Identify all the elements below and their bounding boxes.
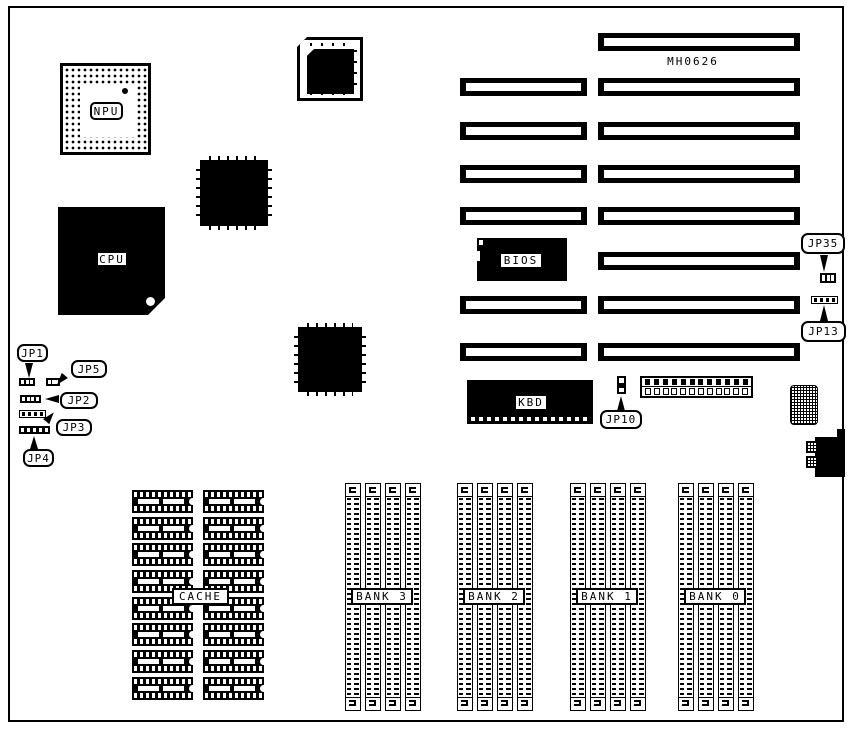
socket-latch — [679, 484, 693, 497]
chip-notch — [189, 578, 193, 585]
chip-window — [138, 526, 159, 531]
chip-window — [234, 579, 255, 584]
power-pin — [654, 379, 659, 385]
edge-pin-block — [806, 441, 817, 453]
pin-row — [134, 679, 191, 684]
power-pin-row — [642, 378, 751, 387]
cache-chip — [203, 677, 264, 700]
pin-row — [134, 572, 191, 577]
power-cell — [654, 388, 660, 395]
pin-row — [205, 666, 262, 671]
power-cell — [707, 388, 713, 395]
power-pin — [734, 379, 739, 385]
power-pin — [743, 379, 748, 385]
socket-latch — [366, 697, 380, 710]
chip-window — [234, 552, 255, 557]
socket-latch — [571, 484, 585, 497]
power-cell-row — [642, 387, 751, 396]
simm-bank-2: BANK 2 — [457, 483, 533, 711]
socket-latch — [699, 484, 713, 497]
chip-window — [163, 686, 184, 691]
callout-jp4: JP4 — [23, 449, 54, 467]
socket-latch — [386, 484, 400, 497]
jumper-pin — [820, 298, 823, 302]
plcc-ring — [300, 40, 360, 98]
power-pin — [645, 379, 650, 385]
chip-notch — [260, 525, 264, 532]
jumper-pin — [826, 298, 829, 302]
isa-slot-short — [460, 207, 587, 225]
isa-slot-long — [598, 296, 800, 314]
callout-jp10: JP10 — [600, 410, 642, 429]
isa-slot-long — [598, 343, 800, 361]
bios-label: BIOS — [499, 252, 543, 269]
chip-window — [209, 659, 230, 664]
chip-notch — [260, 551, 264, 558]
chip-window — [234, 499, 255, 504]
jumper-pin — [40, 412, 43, 416]
pin-ticks — [362, 336, 366, 383]
socket-latch — [406, 484, 420, 497]
pin-row — [134, 559, 191, 564]
bank0-label: BANK 0 — [684, 588, 746, 605]
chip-window — [209, 579, 230, 584]
pin-ticks — [209, 156, 259, 160]
chip-window — [163, 552, 184, 557]
pin-row — [134, 506, 191, 511]
callout-jp2: JP2 — [60, 392, 98, 409]
kbd-label: KBD — [514, 394, 548, 411]
jumper-pin — [33, 428, 36, 432]
pin1-notch — [479, 240, 483, 245]
callout-tail — [820, 255, 828, 272]
pin-row — [205, 625, 262, 630]
isa-slot-short — [460, 343, 587, 361]
jumper-pin — [36, 397, 39, 401]
pin-row — [205, 693, 262, 698]
power-cell — [671, 388, 677, 395]
socket-latch — [346, 697, 360, 710]
chip-window — [234, 526, 255, 531]
bios-chip: BIOS — [477, 238, 567, 281]
chip-notch — [189, 498, 193, 505]
socket-latch — [458, 697, 472, 710]
pin-row — [205, 679, 262, 684]
chip-notch — [189, 551, 193, 558]
socket-latch — [591, 697, 605, 710]
cache-label: CACHE — [172, 588, 229, 605]
cache-chip — [132, 677, 193, 700]
isa-slot-long — [598, 78, 800, 96]
chip-notch — [189, 605, 193, 612]
pin-row — [205, 572, 262, 577]
cache-chip — [203, 623, 264, 646]
kbd-chip: KBD — [467, 380, 593, 424]
socket-latch — [498, 484, 512, 497]
pin-row — [134, 545, 191, 550]
socket-latch — [699, 697, 713, 710]
isa-slot-long — [598, 33, 800, 51]
pin-ticks — [307, 392, 353, 396]
pin-row — [205, 545, 262, 550]
jumper-pin — [34, 412, 37, 416]
jumper-pin — [26, 380, 29, 384]
callout-jp13: JP13 — [801, 321, 846, 342]
socket-latch — [611, 697, 625, 710]
chip-window — [234, 606, 255, 611]
cache-chip — [203, 543, 264, 566]
bank1-label: BANK 1 — [576, 588, 638, 605]
pin-row — [471, 417, 589, 421]
plcc-chip — [307, 49, 354, 94]
simm-bank-0: BANK 0 — [678, 483, 754, 711]
callout-jp5: JP5 — [71, 360, 107, 378]
chip-window — [234, 632, 255, 637]
chip-window — [234, 686, 255, 691]
power-pin — [663, 379, 668, 385]
socket-latch — [719, 697, 733, 710]
jumper-pin — [28, 412, 31, 416]
isa-slot-short — [460, 78, 587, 96]
chip-window — [163, 526, 184, 531]
power-pin — [672, 379, 677, 385]
callout-jp35: JP35 — [801, 233, 845, 254]
chip-notch — [189, 685, 193, 692]
pin-row — [134, 492, 191, 497]
jumper-pin — [27, 428, 30, 432]
chip-window — [234, 659, 255, 664]
jumper-pin — [21, 380, 24, 384]
cache-chip — [203, 517, 264, 540]
jumper-pin — [45, 428, 48, 432]
chip-window — [209, 526, 230, 531]
chip-window — [138, 659, 159, 664]
isa-slot-short — [460, 165, 587, 183]
power-cell — [742, 388, 748, 395]
jumper-jp35 — [820, 273, 836, 283]
power-cell — [724, 388, 730, 395]
pin-row — [205, 519, 262, 524]
callout-tail — [45, 395, 59, 403]
socket-latch — [679, 697, 693, 710]
power-cell — [645, 388, 651, 395]
power-cell — [689, 388, 695, 395]
pin-row — [134, 652, 191, 657]
chip-window — [138, 499, 159, 504]
isa-slot-long — [598, 252, 800, 270]
pin-row — [205, 533, 262, 538]
socket-latch — [478, 484, 492, 497]
cache-chip — [132, 543, 193, 566]
cache-chip — [132, 650, 193, 673]
jumper-pin — [31, 397, 34, 401]
socket-latch — [571, 697, 585, 710]
power-cell — [716, 388, 722, 395]
isa-slot-long — [598, 122, 800, 140]
pin1-dot — [122, 88, 128, 94]
callout-tail — [25, 363, 33, 378]
pin-row — [205, 492, 262, 497]
bank3-label: BANK 3 — [351, 588, 413, 605]
chip-window — [138, 632, 159, 637]
power-pin — [698, 379, 703, 385]
cpu-label: CPU — [96, 251, 128, 267]
power-pin — [725, 379, 730, 385]
pin-row — [134, 666, 191, 671]
pin-row — [134, 613, 191, 618]
callout-tail — [617, 396, 625, 411]
pin-ticks — [354, 50, 357, 90]
pin-ticks — [209, 226, 259, 230]
npu-label: NPU — [90, 102, 123, 120]
chip-window — [209, 606, 230, 611]
pin-row — [205, 639, 262, 644]
pin1-dot — [146, 297, 155, 306]
power-cell — [663, 388, 669, 395]
cpu-chip: CPU — [58, 207, 165, 315]
jumper-jp4 — [19, 426, 50, 434]
pin-ticks — [268, 169, 272, 217]
socket-latch — [498, 697, 512, 710]
jumper-jp10 — [617, 376, 626, 394]
pin-mark — [477, 251, 480, 261]
cache-chip — [132, 490, 193, 513]
cache-chip — [132, 623, 193, 646]
chip-window — [209, 632, 230, 637]
jumper-pin — [831, 275, 834, 281]
callout-jp3: JP3 — [56, 419, 92, 436]
socket-latch — [719, 484, 733, 497]
socket-latch — [631, 697, 645, 710]
pin-row — [134, 533, 191, 538]
motherboard-diagram: NPU CPU MH0626 — [0, 0, 852, 731]
power-pin — [707, 379, 712, 385]
power-cell — [680, 388, 686, 395]
pin-ticks — [294, 336, 298, 383]
cache-chip — [132, 517, 193, 540]
power-pin — [690, 379, 695, 385]
simm-bank-3: BANK 3 — [345, 483, 421, 711]
jumper-jp13 — [811, 296, 838, 304]
isa-slot-long — [598, 165, 800, 183]
chip-window — [163, 659, 184, 664]
jumper-pin — [39, 428, 42, 432]
socket-latch — [518, 697, 532, 710]
plcc-socket — [297, 37, 363, 101]
chip-window — [163, 606, 184, 611]
qfp-chip — [200, 160, 268, 226]
socket-latch — [458, 484, 472, 497]
jumper-pin — [30, 380, 33, 384]
jumper-jp2 — [20, 395, 41, 403]
jumper-pin — [619, 383, 624, 388]
chip-notch — [260, 631, 264, 638]
socket-latch — [631, 484, 645, 497]
isa-slot-long — [598, 207, 800, 225]
jumper-pin — [827, 275, 830, 281]
socket-latch — [591, 484, 605, 497]
pin-row — [205, 559, 262, 564]
chip-window — [209, 499, 230, 504]
chip-window — [163, 632, 184, 637]
bank2-label: BANK 2 — [463, 588, 525, 605]
socket-latch — [739, 697, 753, 710]
chip-notch — [189, 658, 193, 665]
cache-chip — [203, 490, 264, 513]
callout-tail — [820, 305, 828, 321]
socket-latch — [518, 484, 532, 497]
chip-window — [138, 552, 159, 557]
isa-slot-short — [460, 122, 587, 140]
jumper-pin — [822, 275, 825, 281]
callout-tail — [30, 436, 38, 449]
power-cell — [733, 388, 739, 395]
chip-window — [138, 579, 159, 584]
pin-row — [134, 693, 191, 698]
jumper-pin — [832, 298, 835, 302]
pin-row — [134, 625, 191, 630]
socket-latch — [366, 484, 380, 497]
chip-notch — [260, 685, 264, 692]
chip-window — [163, 579, 184, 584]
socket-latch — [739, 484, 753, 497]
edge-pin-block — [806, 456, 817, 468]
jumper-pin — [814, 298, 817, 302]
socket-latch — [406, 697, 420, 710]
chip-window — [138, 686, 159, 691]
chip-notch — [260, 658, 264, 665]
isa-slot-short — [460, 296, 587, 314]
cache-chip — [203, 650, 264, 673]
chip-notch — [189, 525, 193, 532]
power-connector — [640, 376, 753, 398]
chip-window — [138, 606, 159, 611]
power-pin — [681, 379, 686, 385]
chip-notch — [189, 631, 193, 638]
socket-latch — [346, 484, 360, 497]
chip-notch — [260, 498, 264, 505]
pin-ticks — [196, 169, 200, 217]
power-pin — [716, 379, 721, 385]
callout-jp1: JP1 — [17, 344, 48, 362]
socket-latch — [386, 697, 400, 710]
chip-window — [209, 552, 230, 557]
pin-row — [205, 506, 262, 511]
model-number: MH0626 — [648, 55, 738, 68]
jumper-pin — [22, 397, 25, 401]
din-connector — [790, 385, 818, 425]
jumper-jp3 — [19, 410, 46, 418]
chip-window — [209, 686, 230, 691]
chip-window — [163, 499, 184, 504]
pin-ticks — [307, 323, 353, 327]
socket-latch — [611, 484, 625, 497]
power-cell — [698, 388, 704, 395]
pin-row — [205, 652, 262, 657]
qfp-chip — [298, 327, 362, 392]
chip-notch — [260, 578, 264, 585]
pin-row — [134, 519, 191, 524]
simm-bank-1: BANK 1 — [570, 483, 646, 711]
jumper-pin — [27, 397, 30, 401]
jumper-pin — [22, 412, 25, 416]
npu-socket: NPU — [60, 63, 151, 155]
jumper-pin — [21, 428, 24, 432]
keyboard-port — [815, 437, 845, 477]
pin-ticks — [310, 43, 352, 46]
pin-row — [205, 613, 262, 618]
pin-row — [134, 639, 191, 644]
chip-notch — [260, 605, 264, 612]
jumper-jp1 — [19, 378, 35, 386]
socket-latch — [478, 697, 492, 710]
